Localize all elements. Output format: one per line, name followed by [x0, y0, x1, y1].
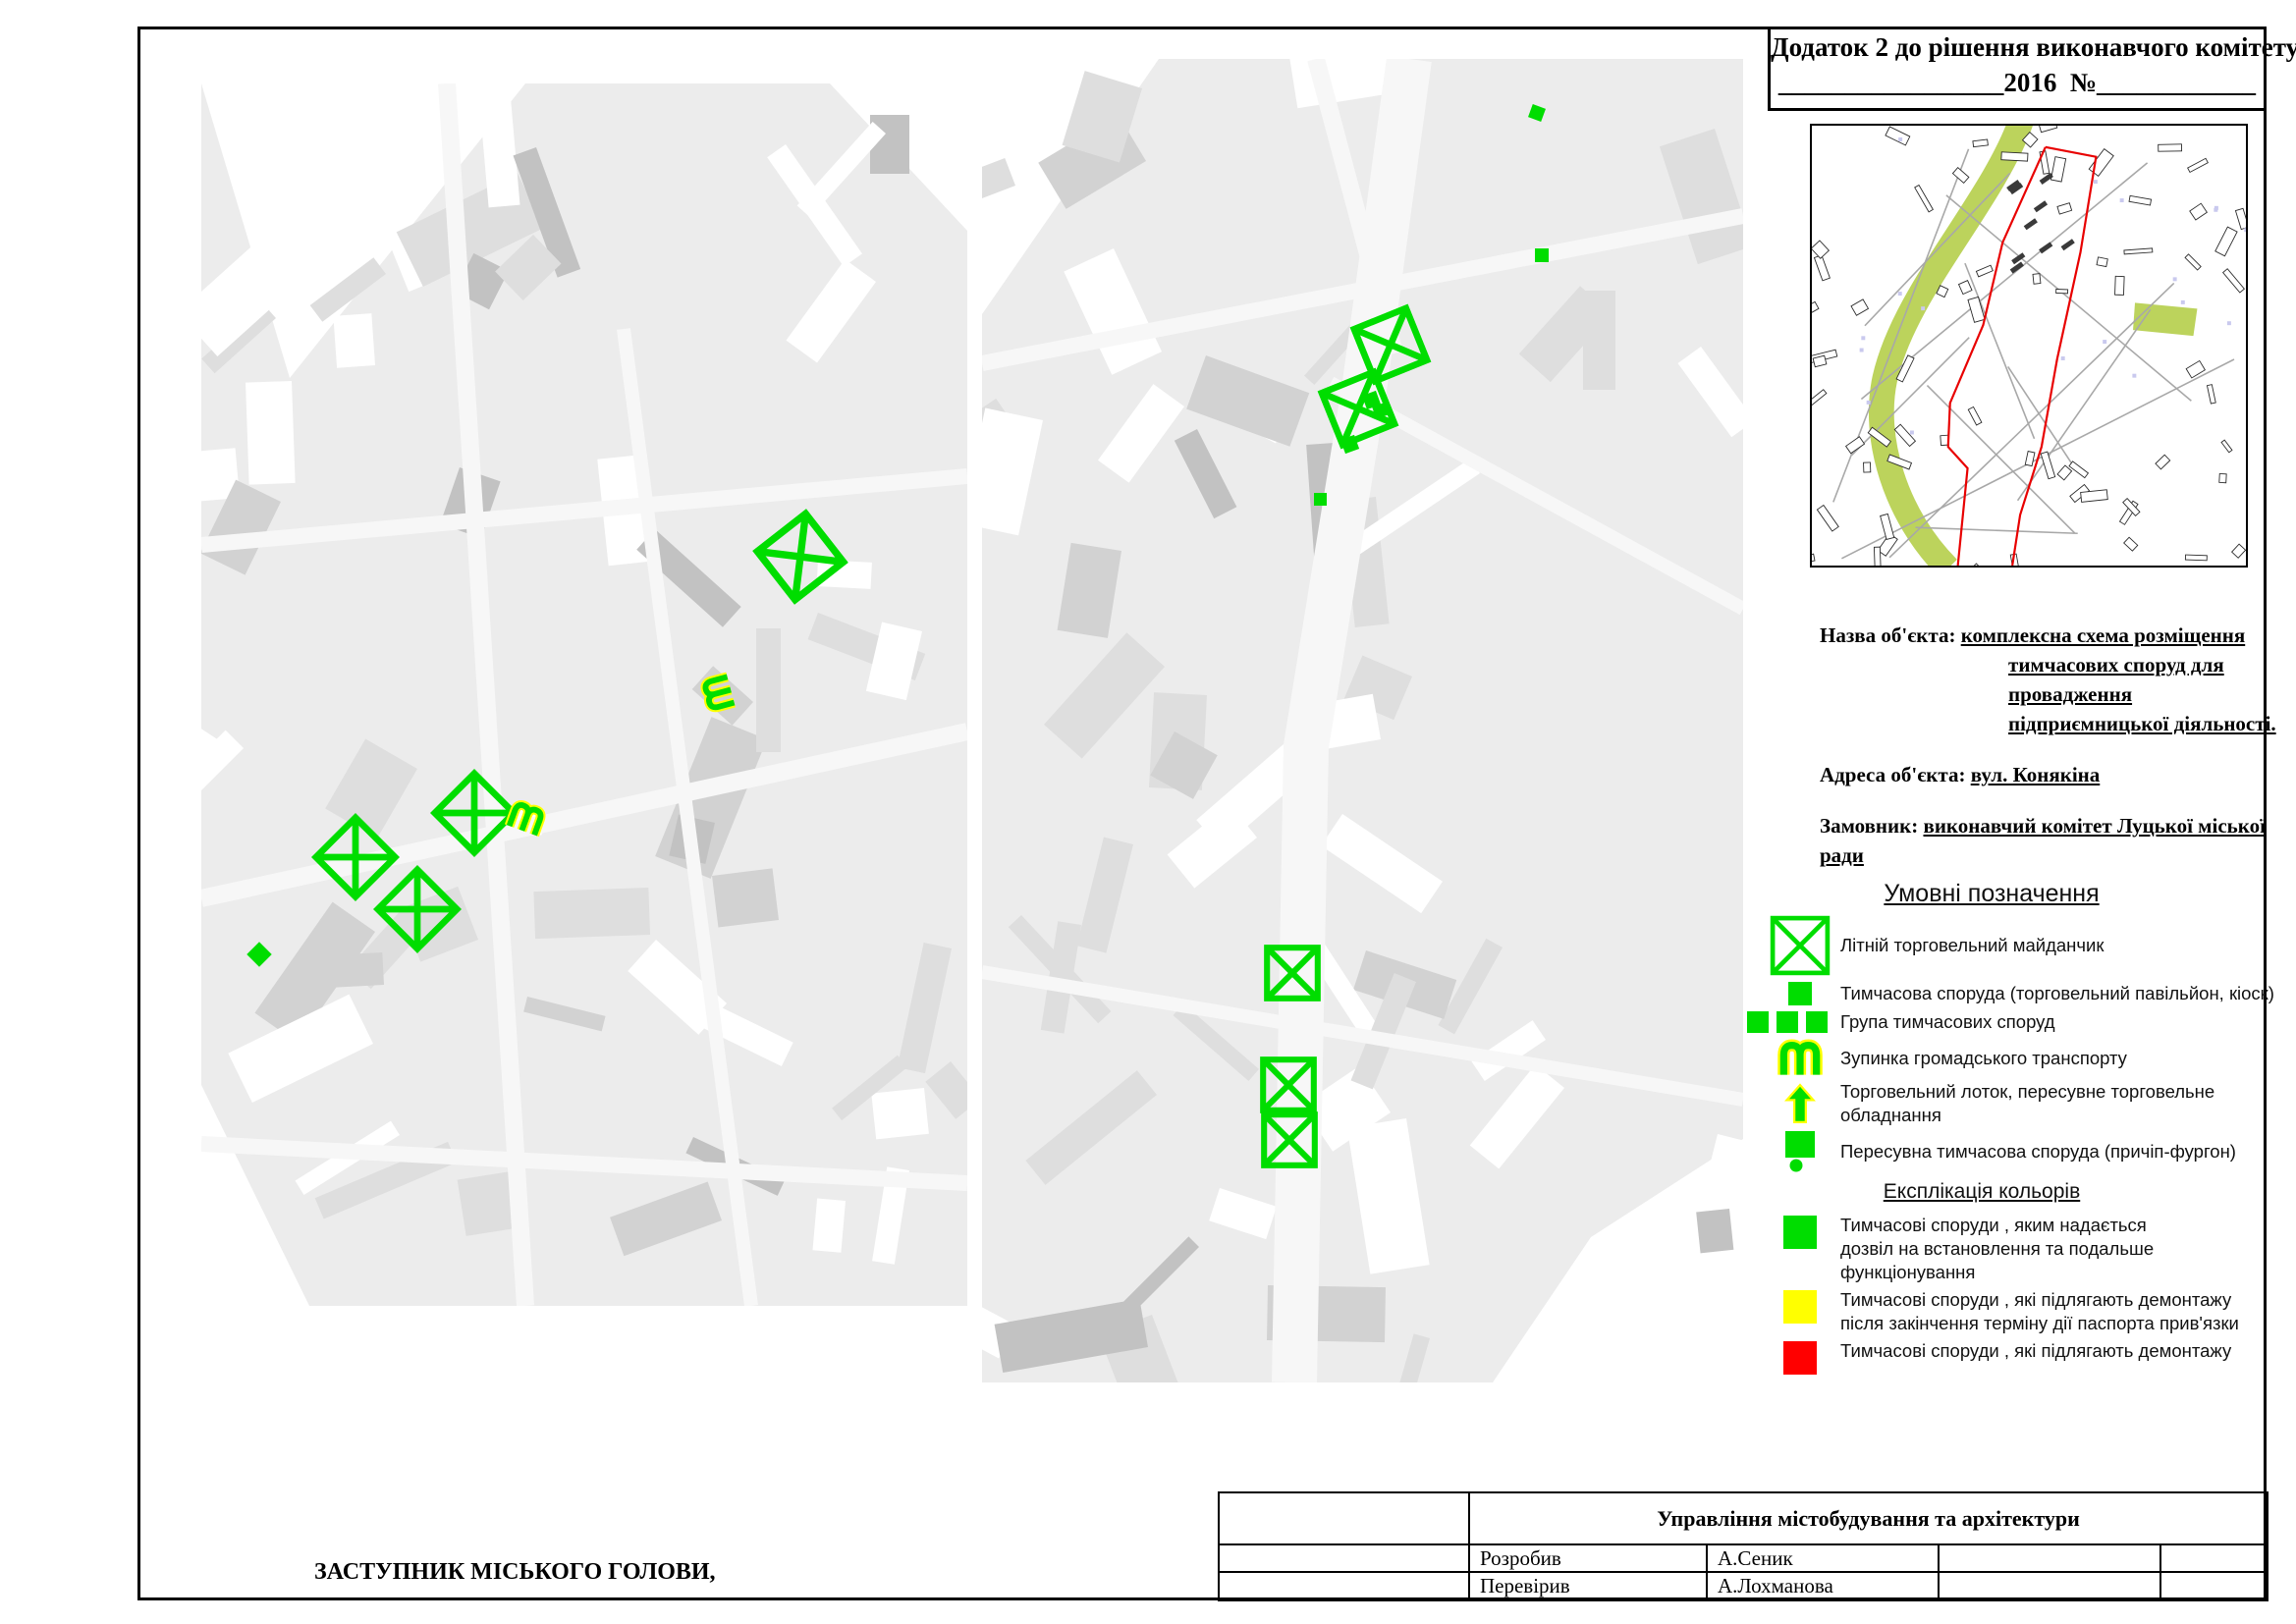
kiosk-group-icon — [1760, 1011, 1840, 1033]
legend-item-label: Зупинка громадського транспорту — [1840, 1047, 2127, 1070]
stamp-cell-empty — [1939, 1544, 2160, 1572]
city-map-center — [982, 59, 1743, 1382]
overview-map-canvas — [1812, 126, 2246, 566]
trade-tray-icon — [1760, 1081, 1840, 1126]
color-item-red: Тимчасові споруди , які підлягають демон… — [1760, 1339, 2282, 1375]
legend-item-trailer: Пересувна тимчасова споруда (причіп-фург… — [1760, 1129, 2282, 1174]
legend-item-trade-tray: Торговельний лоток, пересувне торговельн… — [1760, 1080, 2282, 1127]
legend-item-label: Тимчасова споруда (торговельний павільйо… — [1840, 982, 2274, 1005]
map-marker-kiosk — [1314, 493, 1327, 506]
legend-item-label: Пересувна тимчасова споруда (причіп-фург… — [1840, 1140, 2236, 1164]
color-legend-title: Експлікація кольорів — [1760, 1180, 2204, 1204]
role-cell: Розробив — [1469, 1544, 1707, 1572]
legend-item-label: Торговельний лоток, пересувне торговельн… — [1840, 1080, 2214, 1127]
stamp-cell-empty — [1219, 1544, 1469, 1572]
map-canvas — [982, 59, 1743, 1382]
map-marker-summer-platform — [1260, 1056, 1317, 1113]
overview-map — [1810, 124, 2248, 568]
department-cell: Управління містобудування та архітектури — [1469, 1492, 2268, 1544]
color-item-label: Тимчасові споруди , які підлягають демон… — [1840, 1339, 2231, 1363]
signature-line1: ЗАСТУПНИК МІСЬКОГО ГОЛОВИ, — [314, 1553, 1174, 1591]
stamp-cell-empty — [1939, 1572, 2160, 1600]
title-block: Додаток 2 до рішення виконавчого комітет… — [1768, 27, 2267, 111]
city-map-left — [201, 83, 967, 1306]
object-name-value: комплексна схема розміщення тимчасових с… — [1961, 623, 2276, 735]
table-row: Перевірив А.Лохманова — [1219, 1572, 2268, 1600]
table-row: Розробив А.Сеник — [1219, 1544, 2268, 1572]
legend-item-kiosk-group: Група тимчасових споруд — [1760, 1010, 2282, 1034]
title-line1: Додаток 2 до рішення виконавчого комітет… — [1771, 29, 2264, 65]
color-item-green: Тимчасові споруди , яким надається дозві… — [1760, 1214, 2282, 1284]
red-color-chip — [1783, 1341, 1817, 1375]
object-address-value: вул. Конякіна — [1971, 763, 2101, 786]
legend-item-label: Літній торговельний майданчик — [1840, 934, 2104, 957]
legend-item-kiosk: Тимчасова споруда (торговельний павільйо… — [1760, 982, 2282, 1005]
object-name-row: Назва об'єкта: комплексна схема розміщен… — [1820, 621, 2281, 738]
role-cell: Перевірив — [1469, 1572, 1707, 1600]
map-marker-summer-platform — [1264, 945, 1321, 1001]
name-cell: А.Лохманова — [1707, 1572, 1939, 1600]
stamp-table: Управління містобудування та архітектури… — [1218, 1491, 2269, 1601]
object-customer-row: Замовник: виконавчий комітет Луцької міс… — [1820, 811, 2281, 870]
yellow-color-chip — [1783, 1290, 1817, 1324]
color-item-yellow: Тимчасові споруди , які підлягають демон… — [1760, 1288, 2282, 1335]
legend-item-label: Група тимчасових споруд — [1840, 1010, 2055, 1034]
green-color-chip — [1783, 1216, 1817, 1249]
legend-title: Умовні позначення — [1760, 882, 2223, 905]
object-address-row: Адреса об'єкта: вул. Конякіна — [1820, 760, 2281, 789]
stamp-cell-empty — [1219, 1492, 1469, 1544]
legend: Умовні позначення Літній торговельний ма… — [1760, 882, 2282, 1379]
kiosk-icon — [1760, 982, 1840, 1005]
title-line2: _________________2016 №____________ — [1771, 65, 2264, 100]
map-marker-kiosk — [1535, 248, 1549, 262]
name-cell: А.Сеник — [1707, 1544, 1939, 1572]
object-address-label: Адреса об'єкта: — [1820, 763, 1965, 786]
stamp-cell-empty — [2160, 1572, 2268, 1600]
signature-block: ЗАСТУПНИК МІСЬКОГО ГОЛОВИ, КЕРУЮЧИЙ СПРА… — [314, 1479, 1174, 1624]
document-page: Додаток 2 до рішення виконавчого комітет… — [0, 0, 2296, 1624]
object-name-label: Назва об'єкта: — [1820, 623, 1955, 647]
map-marker-summer-platform — [1261, 1111, 1318, 1168]
color-item-label: Тимчасові споруди , яким надається дозві… — [1840, 1214, 2154, 1284]
bus-stop-icon — [1760, 1039, 1840, 1078]
trailer-icon — [1760, 1129, 1840, 1174]
legend-item-bus-stop: Зупинка громадського транспорту — [1760, 1039, 2282, 1078]
summer-platform-icon — [1760, 915, 1840, 976]
object-info: Назва об'єкта: комплексна схема розміщен… — [1820, 621, 2281, 892]
legend-item-summer-platform: Літній торговельний майданчик — [1760, 915, 2282, 976]
stamp-cell-empty — [1219, 1572, 1469, 1600]
color-item-label: Тимчасові споруди , які підлягають демон… — [1840, 1288, 2239, 1335]
map-canvas — [201, 83, 967, 1306]
object-customer-label: Замовник: — [1820, 814, 1918, 838]
stamp-cell-empty — [2160, 1544, 2268, 1572]
